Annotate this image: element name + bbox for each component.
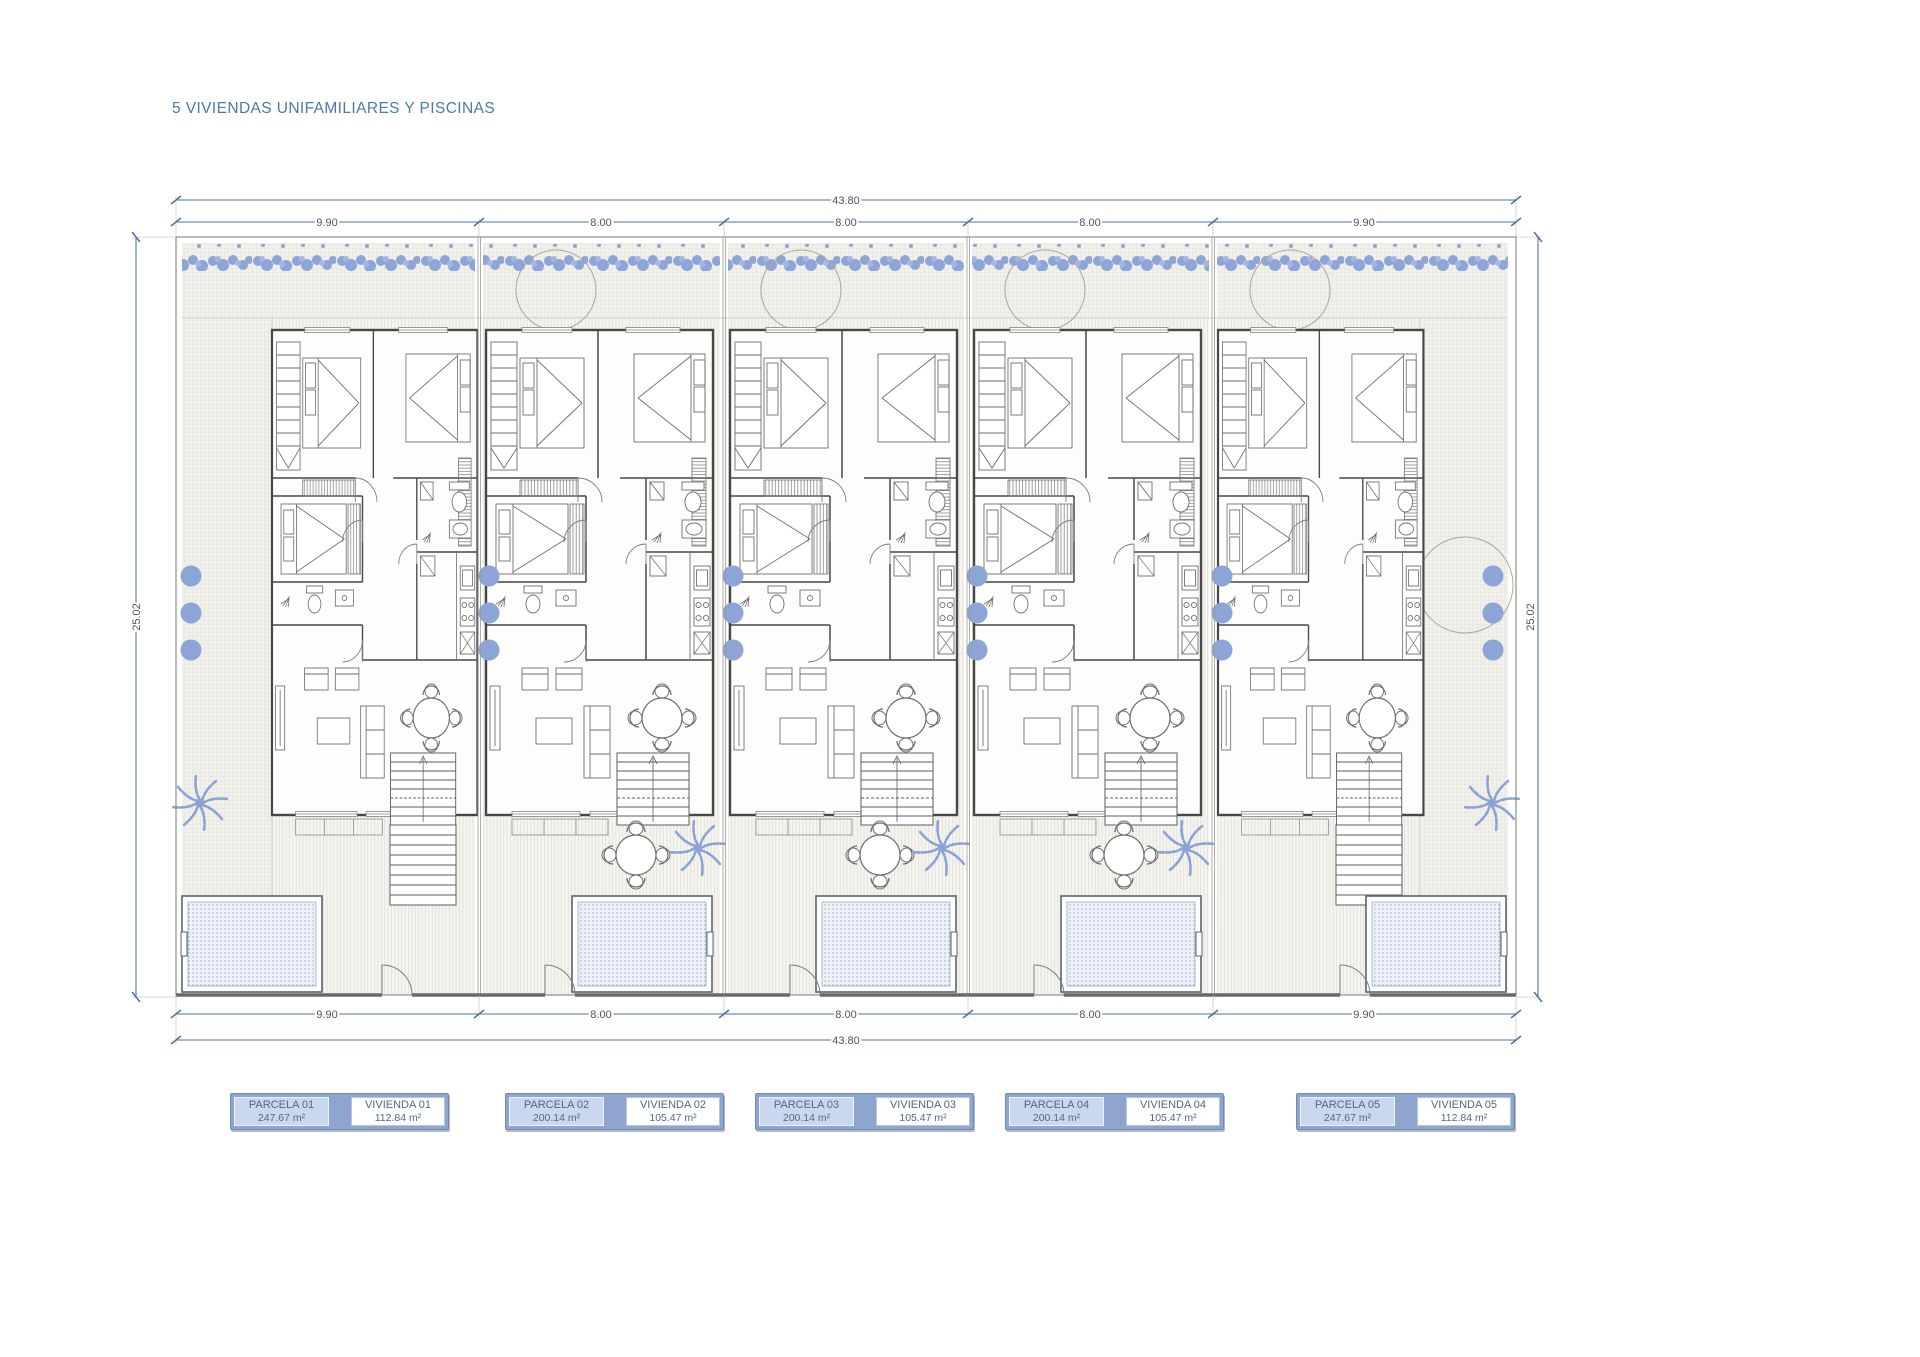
parcela-area: 247.67 m² <box>235 1112 328 1125</box>
vivienda-cell: VIVIENDA 01 112.84 m² <box>351 1097 445 1126</box>
dim-top-seg-4: 8.00 <box>1079 217 1100 229</box>
dim-top-seg-3: 8.00 <box>835 217 856 229</box>
dim-left-side: 25.02 <box>131 603 143 631</box>
vivienda-cell: VIVIENDA 03 105.47 m² <box>876 1097 970 1126</box>
vivienda-label: VIVIENDA 04 <box>1127 1098 1219 1112</box>
parcela-area: 200.14 m² <box>760 1112 853 1125</box>
dim-top-seg-1: 9.90 <box>316 217 337 229</box>
dim-bottom-seg-5: 9.90 <box>1353 1009 1374 1021</box>
parcela-label: PARCELA 05 <box>1301 1098 1394 1112</box>
dim-right-side: 25.02 <box>1525 603 1537 631</box>
dim-bottom-seg-4: 8.00 <box>1079 1009 1100 1021</box>
hedge-icon <box>182 244 1508 271</box>
dim-top-seg-2: 8.00 <box>590 217 611 229</box>
vivienda-cell: VIVIENDA 04 105.47 m² <box>1126 1097 1220 1126</box>
dim-bottom-total: 43.80 <box>832 1035 860 1047</box>
parcela-cell: PARCELA 05 247.67 m² <box>1300 1097 1395 1126</box>
floor-plan-sheet: 5 VIVIENDAS UNIFAMILIARES Y PISCINAS <box>0 0 1920 1357</box>
parcela-label: PARCELA 02 <box>510 1098 603 1112</box>
vivienda-area: 105.47 m² <box>627 1112 719 1125</box>
vivienda-area: 112.84 m² <box>1418 1112 1510 1125</box>
vivienda-area: 105.47 m² <box>877 1112 969 1125</box>
table-gap <box>329 1097 351 1126</box>
parcela-cell: PARCELA 01 247.67 m² <box>234 1097 329 1126</box>
parcela-label: PARCELA 04 <box>1010 1098 1103 1112</box>
table-gap <box>604 1097 626 1126</box>
parcela-area: 200.14 m² <box>1010 1112 1103 1125</box>
dim-bottom-seg-1: 9.90 <box>316 1009 337 1021</box>
parcel-summary-table-03: PARCELA 03 200.14 m² VIVIENDA 03 105.47 … <box>755 1093 974 1130</box>
dim-bottom-seg-2: 8.00 <box>590 1009 611 1021</box>
vivienda-label: VIVIENDA 05 <box>1418 1098 1510 1112</box>
parcel-summary-table-01: PARCELA 01 247.67 m² VIVIENDA 01 112.84 … <box>230 1093 449 1130</box>
vivienda-cell: VIVIENDA 05 112.84 m² <box>1417 1097 1511 1126</box>
vivienda-label: VIVIENDA 02 <box>627 1098 719 1112</box>
page-title: 5 VIVIENDAS UNIFAMILIARES Y PISCINAS <box>172 100 495 118</box>
parcela-cell: PARCELA 02 200.14 m² <box>509 1097 604 1126</box>
parcela-area: 200.14 m² <box>510 1112 603 1125</box>
dim-top-total: 43.80 <box>832 195 860 207</box>
table-gap <box>854 1097 876 1126</box>
dim-top-seg-5: 9.90 <box>1353 217 1374 229</box>
parcela-cell: PARCELA 04 200.14 m² <box>1009 1097 1104 1126</box>
parcel-summary-table-02: PARCELA 02 200.14 m² VIVIENDA 02 105.47 … <box>505 1093 724 1130</box>
vivienda-area: 105.47 m² <box>1127 1112 1219 1125</box>
parcela-label: PARCELA 01 <box>235 1098 328 1112</box>
dim-bottom-seg-3: 8.00 <box>835 1009 856 1021</box>
vivienda-area: 112.84 m² <box>352 1112 444 1125</box>
vivienda-label: VIVIENDA 01 <box>352 1098 444 1112</box>
parcela-cell: PARCELA 03 200.14 m² <box>759 1097 854 1126</box>
vivienda-cell: VIVIENDA 02 105.47 m² <box>626 1097 720 1126</box>
parcel-summary-table-05: PARCELA 05 247.67 m² VIVIENDA 05 112.84 … <box>1296 1093 1515 1130</box>
table-gap <box>1395 1097 1417 1126</box>
parcela-label: PARCELA 03 <box>760 1098 853 1112</box>
table-gap <box>1104 1097 1126 1126</box>
parcel-summary-table-04: PARCELA 04 200.14 m² VIVIENDA 04 105.47 … <box>1005 1093 1224 1130</box>
parcela-area: 247.67 m² <box>1301 1112 1394 1125</box>
vivienda-label: VIVIENDA 03 <box>877 1098 969 1112</box>
site-plan-drawing: 43.80 9.90 8.00 8.00 8.00 9.90 9.90 8.00… <box>0 0 1920 1357</box>
